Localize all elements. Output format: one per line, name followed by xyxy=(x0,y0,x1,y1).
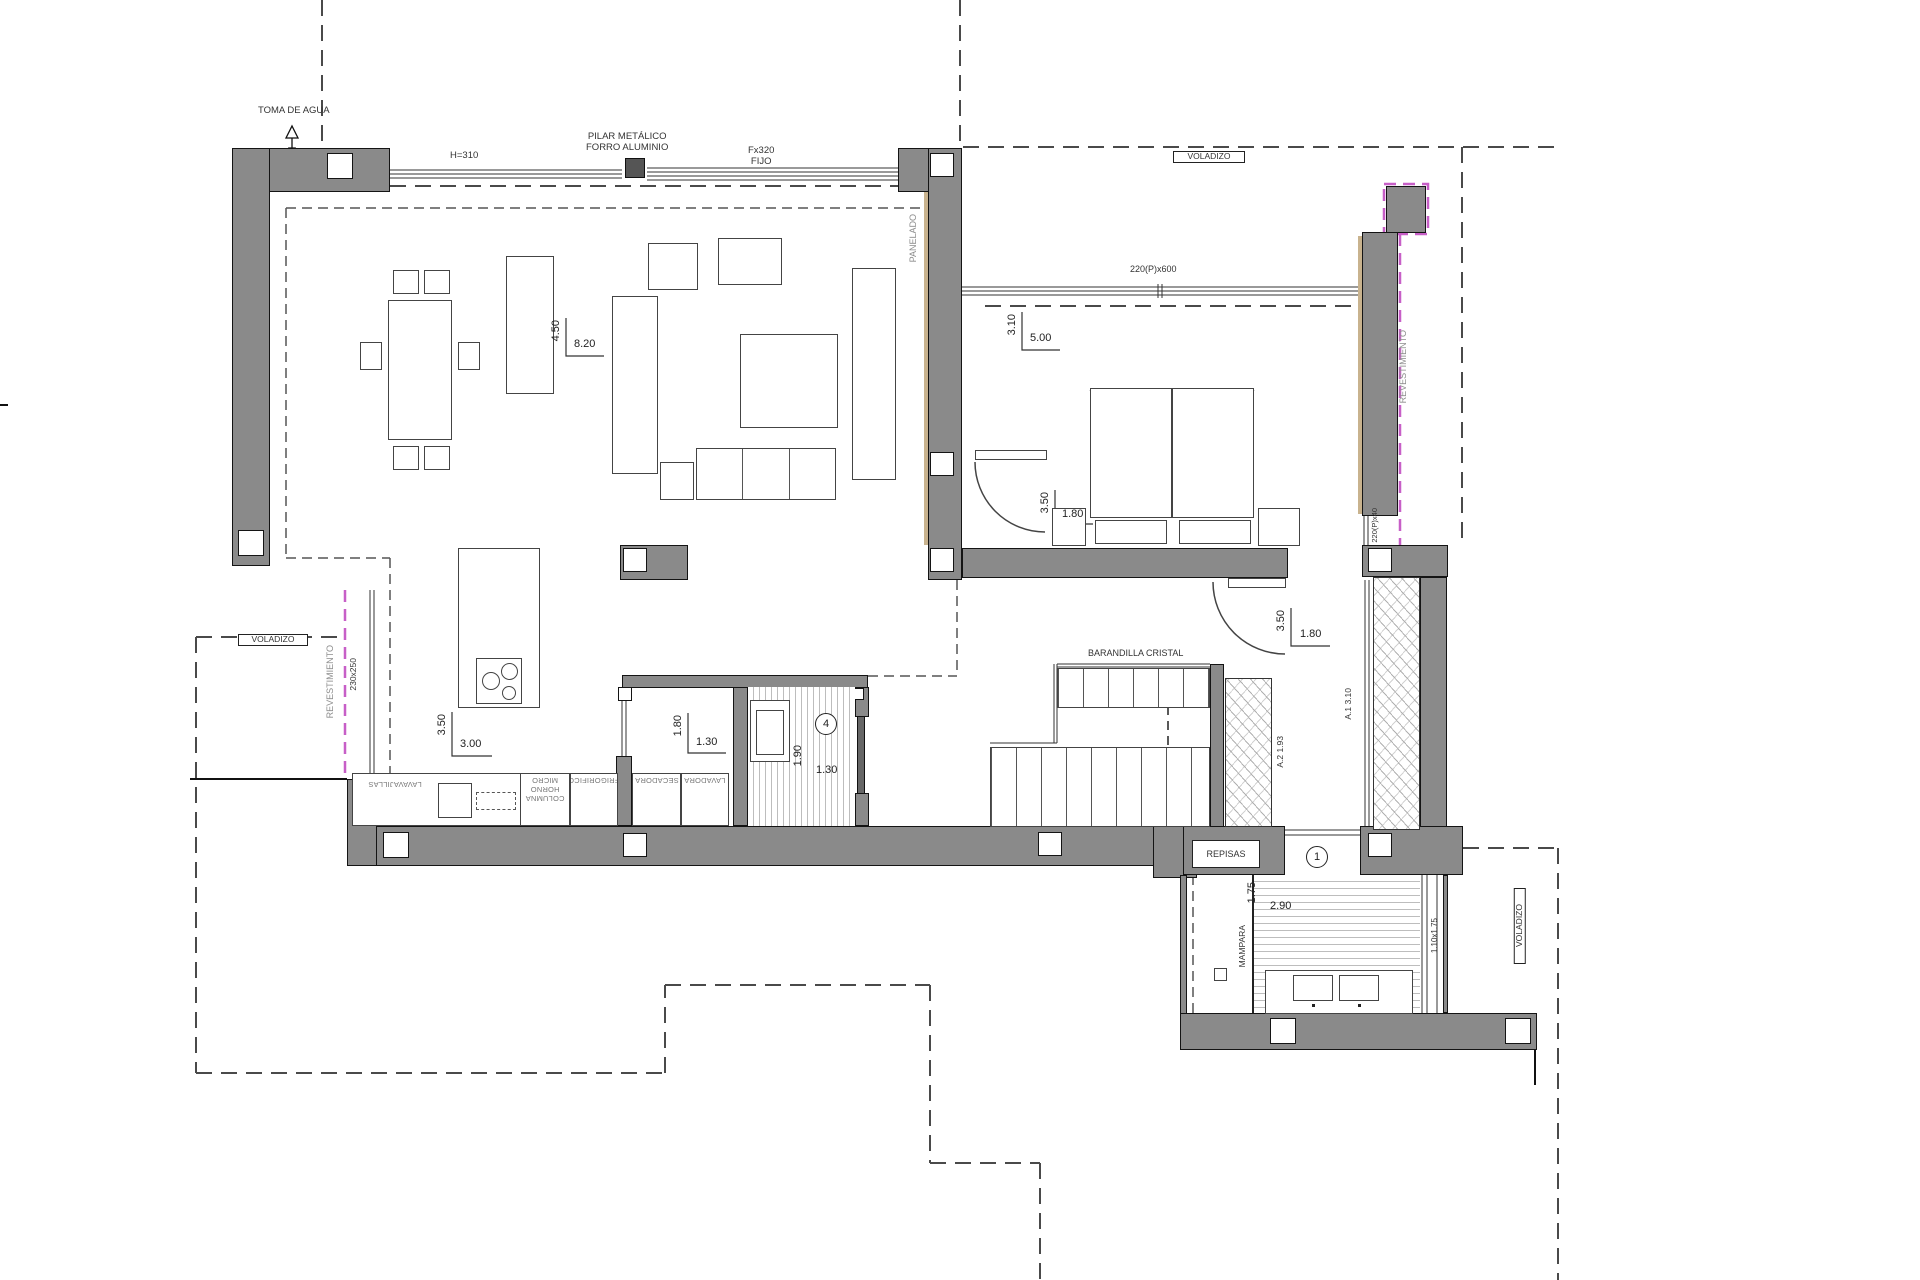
appliance-label-fridge: FRIGORIFICO xyxy=(570,776,618,785)
faucet-dot xyxy=(1312,1004,1315,1007)
cladding-size-label: 230x250 xyxy=(349,658,359,691)
dining-chair xyxy=(424,270,450,294)
appliance-label-dryer: SECADORA xyxy=(635,776,679,785)
revestimiento-label-right: REVESTIMIENTO xyxy=(1398,330,1408,403)
sink-unit xyxy=(438,783,472,818)
bath4-sink xyxy=(756,710,784,755)
pillar-box xyxy=(623,833,647,857)
cooktop-burner xyxy=(502,686,516,700)
sofa-right xyxy=(852,268,896,480)
bedroom-window-label: 220(P)x600 xyxy=(1130,264,1177,274)
h310-label: H=310 xyxy=(450,151,478,162)
undercounter-appliance xyxy=(476,792,516,810)
dining-chair xyxy=(458,342,480,370)
dim-bath1-h: 2.90 xyxy=(1270,900,1291,913)
armchair xyxy=(648,243,698,290)
pillar-box xyxy=(618,687,632,701)
laundry-dryer-cell: SECADORA xyxy=(632,773,681,826)
dim-door-bedroom-h: 1.80 xyxy=(1300,628,1321,641)
metal-pillar xyxy=(625,158,645,178)
stair-upper-flight xyxy=(1057,668,1210,708)
sofa-bottom xyxy=(696,448,836,500)
roof-overhang-dashed xyxy=(196,0,1558,1280)
pillar-box xyxy=(623,548,647,572)
pilar-label-line2: FORRO ALUMINIO xyxy=(586,143,668,154)
dining-chair xyxy=(360,342,382,370)
appliance-label-dishwasher: LAVAVAJILLAS xyxy=(356,780,434,789)
mampara-label: MAMPARA xyxy=(1238,925,1248,967)
dim-kitchen-v: 3.50 xyxy=(436,714,449,735)
wall-bedroom-bottom xyxy=(962,548,1288,578)
dim-door-entry-v: 3.50 xyxy=(1039,492,1052,513)
wardrobe-a2 xyxy=(1225,678,1272,827)
toma-de-agua-label: TOMA DE AGUA xyxy=(258,106,330,117)
bath1-sink xyxy=(1339,975,1379,1001)
dim-bath4-v: 1.90 xyxy=(792,745,805,766)
dim-bath4-h: 1.30 xyxy=(816,764,837,777)
pillar-box xyxy=(1368,833,1392,857)
dining-chair xyxy=(393,446,419,470)
room-number-badge: 1 xyxy=(1306,846,1328,868)
wall-cladding-strip-right xyxy=(1358,236,1362,514)
dim-living-h: 8.20 xyxy=(574,338,595,351)
dining-table xyxy=(388,300,452,440)
barandilla-label: BARANDILLA CRISTAL xyxy=(1088,648,1183,658)
wall-paneling-strip xyxy=(924,192,928,545)
dim-bedroom-h: 5.00 xyxy=(1030,332,1051,345)
wall-bath1-bottom xyxy=(1180,1013,1537,1050)
floor-plan: LAVAVAJILLAS COLUMNA HORNO MICRO FRIGORI… xyxy=(0,0,1920,1280)
dining-chair xyxy=(393,270,419,294)
wall-bath1-left xyxy=(1180,875,1187,1015)
pillar-box xyxy=(238,530,264,556)
dim-laundry-v: 1.80 xyxy=(672,715,685,736)
panelado-label: PANELADO xyxy=(908,214,918,262)
wardrobe-a1-label: A.1 3.10 xyxy=(1344,688,1354,720)
wardrobe-a2-label: A.2 1.93 xyxy=(1276,736,1286,768)
tv-unit xyxy=(506,256,554,394)
wall-stair-right xyxy=(1210,664,1224,827)
fijo-label-line2: FIJO xyxy=(748,157,774,168)
voladizo-label-left: VOLADIZO xyxy=(238,634,308,646)
entry-door-leaf xyxy=(975,450,1047,460)
dim-door-entry-h: 1.80 xyxy=(1062,508,1083,521)
cooktop-burner xyxy=(482,672,500,690)
laundry-washer-cell: LAVADORA xyxy=(681,773,729,826)
room-number-badge: 4 xyxy=(815,713,837,735)
kitchen-column-cell: COLUMNA HORNO MICRO xyxy=(520,773,570,826)
voladizo-label-right: VOLADIZO xyxy=(1514,888,1526,964)
bedroom-door-leaf xyxy=(1228,578,1286,588)
revestimiento-label-left: REVESTIMIENTO xyxy=(325,645,335,718)
dim-kitchen-h: 3.00 xyxy=(460,738,481,751)
shower-drain xyxy=(1214,968,1227,981)
repisas-label: REPISAS xyxy=(1192,840,1260,868)
bed-mattress-half xyxy=(1090,388,1172,518)
dim-bedroom-v: 3.10 xyxy=(1006,314,1019,335)
wall-center-vertical xyxy=(928,148,962,580)
stair-lower-flight xyxy=(990,747,1210,827)
bed-mattress-half xyxy=(1172,388,1254,518)
side-table xyxy=(660,462,694,500)
wall-right-bedroom xyxy=(1362,232,1398,516)
dim-door-bedroom-v: 3.50 xyxy=(1275,610,1288,631)
pillar-box xyxy=(1505,1018,1531,1044)
sofa-cushion-line xyxy=(789,449,790,499)
appliance-label-washer: LAVADORA xyxy=(684,776,725,785)
dim-bath1-v: 1.75 xyxy=(1246,882,1259,903)
bed-pillow xyxy=(1179,520,1251,544)
pillar-box xyxy=(383,832,409,858)
appliance-label-column: COLUMNA HORNO MICRO xyxy=(521,776,569,803)
armchair xyxy=(718,238,782,285)
wall-laundry-pier xyxy=(616,756,632,826)
wall-right-top-block xyxy=(1386,186,1426,233)
bath-window-label: 1.10x1.75 xyxy=(1430,918,1439,953)
wall-bottom-main xyxy=(352,826,1197,866)
pillar-box xyxy=(1038,832,1062,856)
cooktop-burner xyxy=(501,663,518,680)
wall-corridor-right xyxy=(1420,577,1447,835)
pillar-box xyxy=(930,153,954,177)
pillar-box xyxy=(1270,1018,1296,1044)
sofa-cushion-line xyxy=(742,449,743,499)
wall-laundry-bath-divider xyxy=(733,687,748,826)
faucet-dot xyxy=(1358,1004,1361,1007)
bed-pillow xyxy=(1095,520,1167,544)
small-window-label: 220(P)x40 xyxy=(1371,508,1380,543)
coffee-table xyxy=(740,334,838,428)
dining-chair xyxy=(424,446,450,470)
nightstand xyxy=(1258,508,1300,546)
pillar-box xyxy=(930,548,954,572)
wardrobe-a1 xyxy=(1373,577,1420,830)
pillar-box xyxy=(327,153,353,179)
wall-left-vertical xyxy=(232,148,270,566)
kitchen-fridge-cell: FRIGORIFICO xyxy=(570,773,618,826)
bath1-sink xyxy=(1293,975,1333,1001)
wall-bath4-right-bottom xyxy=(855,793,869,826)
pillar-box xyxy=(1368,548,1392,572)
voladizo-label-top: VOLADIZO xyxy=(1173,151,1245,163)
wall-bath1-right-thin xyxy=(1443,875,1448,1013)
dim-living-v: 4.50 xyxy=(550,320,563,341)
bath4-door-leaf xyxy=(857,716,865,794)
dim-laundry-h: 1.30 xyxy=(696,736,717,749)
pillar-box xyxy=(930,452,954,476)
sofa-left xyxy=(612,296,658,474)
